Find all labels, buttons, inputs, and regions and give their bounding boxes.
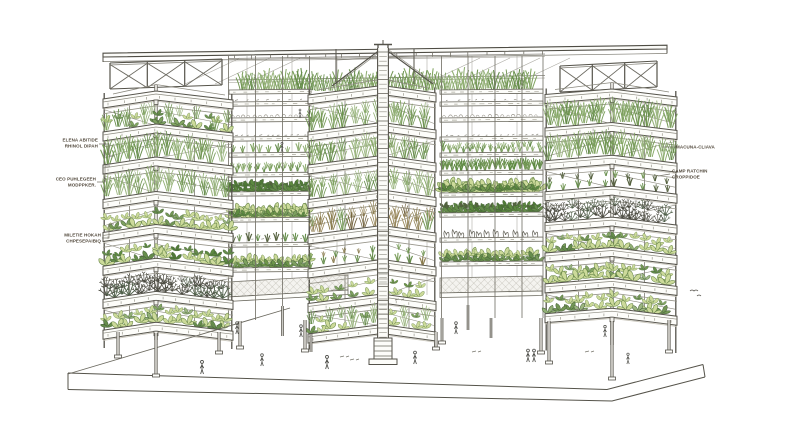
svg-text:CAMP RATCHIN: CAMP RATCHIN <box>672 169 708 174</box>
svg-text:CEO PUHLEGEEH: CEO PUHLEGEEH <box>56 177 96 182</box>
svg-text:CHPESEPAIBIQ: CHPESEPAIBIQ <box>66 239 101 244</box>
svg-text:MILETIE HOKAH: MILETIE HOKAH <box>64 233 101 238</box>
svg-text:ELENA ABITIDE: ELENA ABITIDE <box>63 138 98 143</box>
svg-text:CROPPIDOE: CROPPIDOE <box>672 175 700 180</box>
svg-text:MODPPKER.: MODPPKER. <box>68 183 96 188</box>
svg-text:MACUNA-CLIAVA: MACUNA-CLIAVA <box>676 145 716 150</box>
svg-text:RHINOL DIPAH: RHINOL DIPAH <box>65 144 98 149</box>
